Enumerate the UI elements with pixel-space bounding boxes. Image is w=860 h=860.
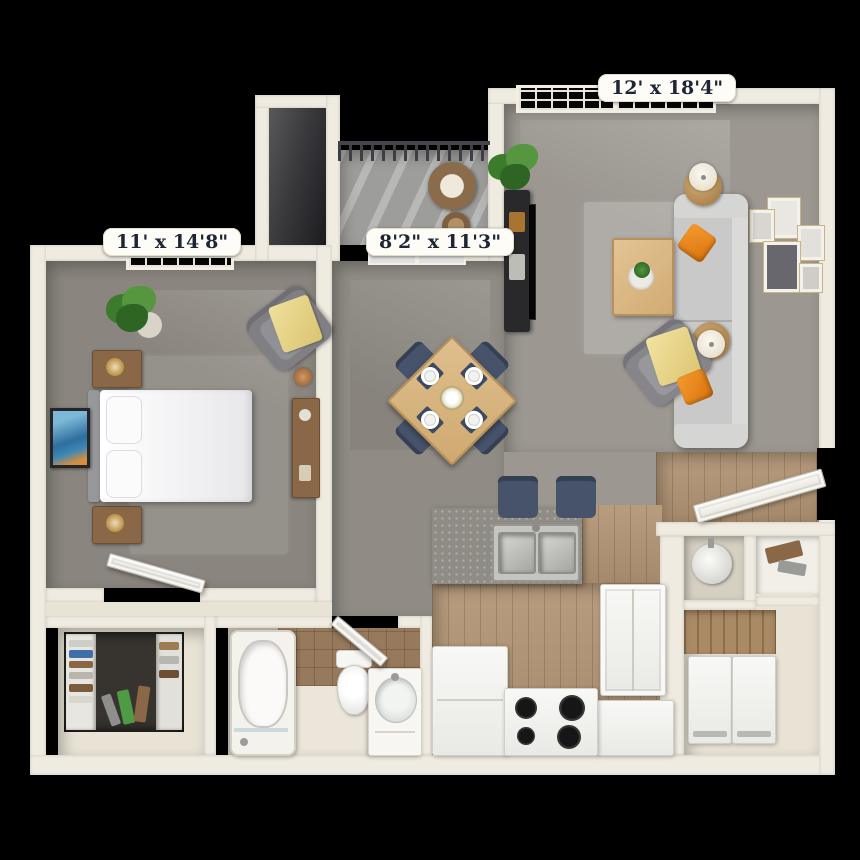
hanging-clothes	[159, 670, 179, 678]
laundry-wood-wall	[684, 610, 776, 654]
shower-glass-panel	[234, 728, 288, 732]
utility-top-wall	[656, 522, 835, 536]
bedroom-plant	[106, 286, 166, 346]
storage-shelf-bottom-wall	[756, 596, 819, 606]
hanging-clothes	[159, 656, 179, 664]
bathroom-top-wall-left	[216, 616, 332, 628]
left-outer-wall	[30, 245, 46, 775]
shelf-item	[777, 560, 807, 577]
bathtub	[230, 630, 296, 756]
hanging-clothes	[159, 642, 179, 650]
balcony-railing	[338, 141, 490, 161]
closet-top-wall	[46, 616, 216, 628]
balcony-wicker-chair	[428, 162, 476, 210]
folded-clothes	[69, 672, 93, 679]
end-table-lamp-bottom	[697, 330, 725, 358]
console-shelf-item	[509, 254, 525, 280]
wall-frame	[750, 210, 774, 242]
vanity-faucet	[391, 673, 399, 681]
desk-item	[299, 465, 311, 481]
end-table-lamp-top	[689, 163, 717, 191]
bedroom-wall-art	[50, 408, 90, 468]
hallway-floor	[46, 602, 332, 616]
stove-burner	[515, 697, 537, 719]
folded-clothes	[69, 640, 93, 647]
folded-clothes	[69, 696, 93, 703]
nightstand-lamp-top	[106, 358, 124, 376]
stove-burner	[517, 727, 535, 745]
desk-item	[299, 409, 311, 421]
sofa-back	[732, 194, 748, 448]
bar-stool	[498, 476, 538, 518]
water-heater-pipe	[708, 538, 714, 548]
bed-pillow-bottom	[106, 450, 142, 498]
stove-burner	[559, 695, 585, 721]
water-heater	[692, 544, 732, 584]
toilet	[334, 650, 372, 716]
alcove-left-wall	[255, 95, 269, 261]
dryer	[732, 656, 776, 744]
bar-stool	[556, 476, 596, 518]
kitchen-sink	[492, 524, 580, 582]
dining-dimension-label: 8'2" x 11'3"	[366, 228, 514, 256]
bedroom-floor-lamp	[294, 368, 312, 386]
bedroom-bottom-wall-right	[200, 588, 316, 602]
right-outer-wall	[819, 88, 835, 775]
folded-clothes	[69, 650, 93, 658]
washer-control-strip	[693, 731, 727, 737]
bathtub-basin	[238, 640, 288, 728]
living-dimension-label: 12' x 18'4"	[598, 74, 736, 102]
closet-shelf-left	[66, 634, 96, 730]
kitchen-counter	[596, 700, 674, 756]
coffee-table	[612, 238, 674, 316]
folded-clothes	[69, 684, 93, 692]
floor-clothes-brown	[134, 685, 151, 722]
wall-frame	[800, 264, 822, 292]
sink-basin-right	[538, 532, 576, 574]
pantry-door-split	[632, 589, 634, 691]
storage-shelf	[756, 536, 819, 594]
shower-head	[240, 738, 248, 746]
console-shelf-item	[509, 212, 525, 232]
tv-screen	[528, 204, 536, 320]
bed-pillow-top	[106, 396, 142, 444]
bedroom-dimension-label: 11' x 14'8"	[103, 228, 241, 256]
water-heater-closet-bottom-wall	[684, 600, 756, 610]
refrigerator-door-split	[437, 699, 503, 701]
toilet-bowl	[337, 665, 371, 715]
dryer-control-strip	[737, 731, 771, 737]
floor-plan: 11' x 14'8" 8'2" x 11'3" 12' x 18'4"	[0, 0, 860, 860]
folded-clothes	[69, 661, 93, 668]
vanity-sink	[375, 677, 417, 723]
wall-frame	[798, 226, 824, 260]
nightstand-lamp-bottom	[106, 514, 124, 532]
tv-console	[504, 190, 530, 332]
kitchen-floor-strip	[582, 505, 662, 585]
storage-alcove-interior	[269, 108, 326, 245]
wall-frame	[764, 242, 800, 292]
bedroom-desk	[292, 398, 320, 498]
sink-basin-left	[498, 532, 536, 574]
pantry-cabinet	[600, 584, 666, 696]
stove-burner	[557, 725, 581, 749]
living-corner-plant	[488, 144, 544, 200]
gallery-wall	[752, 198, 822, 310]
bedroom-bottom-wall-left	[46, 588, 104, 602]
closet-right-wall	[204, 616, 216, 755]
bathroom-vanity	[368, 668, 422, 756]
stove	[504, 688, 598, 756]
water-heater-closet-wall	[744, 536, 756, 610]
sofa-armrest-bottom	[674, 424, 748, 448]
closet-interior	[64, 632, 184, 732]
vanity-drawer-line	[375, 731, 415, 733]
refrigerator	[432, 646, 508, 756]
plant-leaf	[500, 164, 530, 190]
water-heater-closet	[684, 536, 744, 600]
alcove-right-wall	[326, 95, 340, 261]
bottom-outer-wall	[30, 755, 835, 775]
washer	[688, 656, 732, 744]
sink-faucet	[532, 524, 540, 532]
coffee-table-plant	[634, 262, 650, 278]
